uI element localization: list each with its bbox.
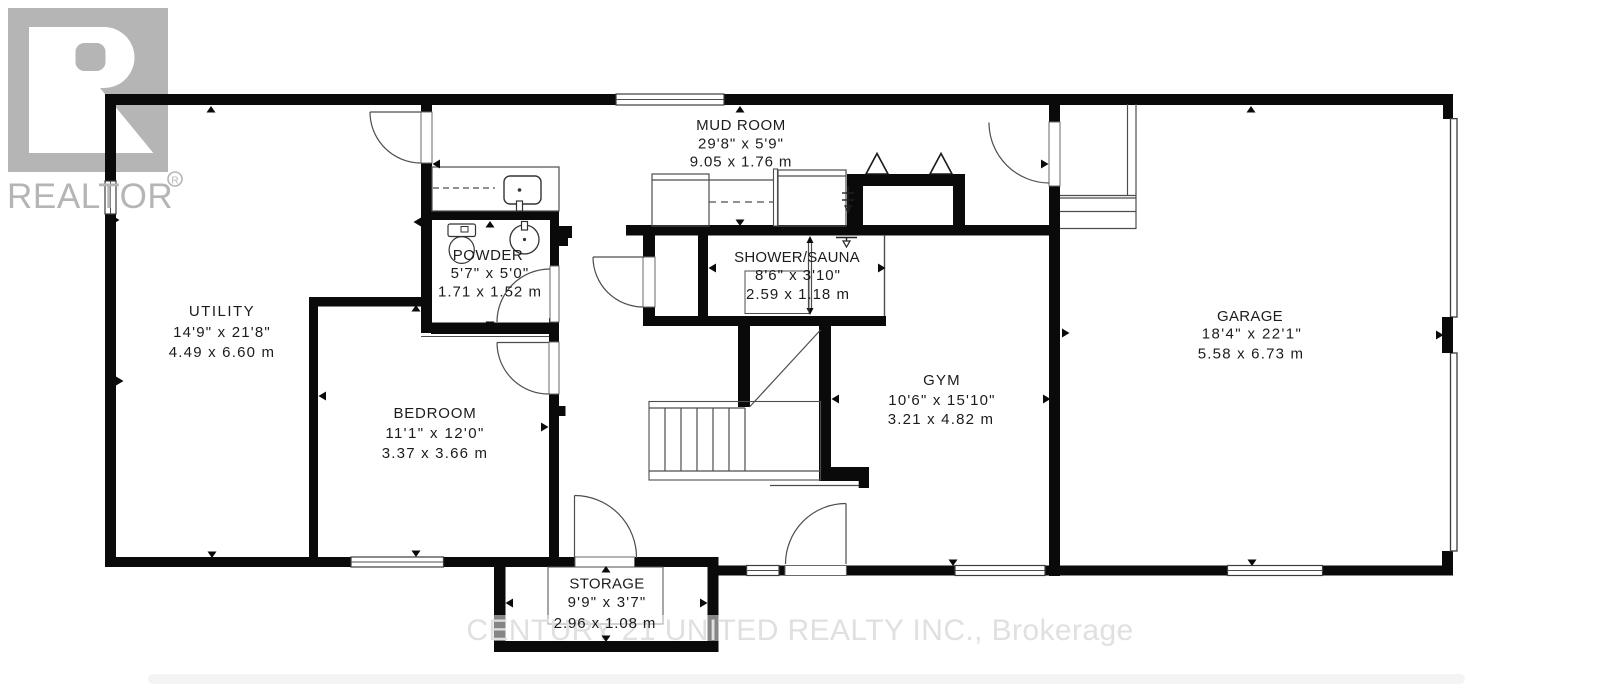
svg-text:3.37 x 3.66 m: 3.37 x 3.66 m (382, 445, 489, 462)
svg-text:10'6" x 15'10": 10'6" x 15'10" (888, 392, 995, 409)
svg-text:5'7" x 5'0": 5'7" x 5'0" (451, 265, 530, 282)
svg-text:5.58 x 6.73 m: 5.58 x 6.73 m (1198, 346, 1305, 363)
svg-text:POWDER: POWDER (453, 247, 524, 264)
svg-text:9.05 x 1.76 m: 9.05 x 1.76 m (690, 154, 793, 171)
svg-text:BEDROOM: BEDROOM (393, 405, 476, 422)
svg-text:SHOWER/SAUNA: SHOWER/SAUNA (734, 249, 860, 266)
svg-text:4.49 x 6.60 m: 4.49 x 6.60 m (169, 344, 276, 361)
svg-text:29'8" x 5'9": 29'8" x 5'9" (698, 136, 784, 153)
svg-text:9'9" x 3'7": 9'9" x 3'7" (568, 594, 647, 611)
svg-text:3.21 x 4.82 m: 3.21 x 4.82 m (888, 411, 995, 428)
svg-text:11'1" x 12'0": 11'1" x 12'0" (385, 425, 484, 442)
svg-text:2.59 x 1.18 m: 2.59 x 1.18 m (746, 286, 850, 303)
svg-text:UTILITY: UTILITY (189, 303, 255, 320)
svg-text:R: R (171, 176, 178, 187)
svg-text:18'4" x 22'1": 18'4" x 22'1" (1202, 326, 1302, 343)
svg-text:2.96 x 1.08 m: 2.96 x 1.08 m (554, 615, 657, 632)
svg-text:STORAGE: STORAGE (569, 576, 644, 593)
svg-text:GYM: GYM (923, 372, 961, 389)
svg-text:GARAGE: GARAGE (1217, 308, 1283, 325)
svg-text:MUD ROOM: MUD ROOM (696, 117, 786, 134)
svg-text:1.71 x 1.52 m: 1.71 x 1.52 m (438, 284, 542, 301)
svg-text:14'9" x 21'8": 14'9" x 21'8" (173, 324, 271, 341)
svg-text:8'6" x 3'10": 8'6" x 3'10" (755, 267, 841, 284)
svg-text:REALTOR: REALTOR (7, 177, 173, 216)
